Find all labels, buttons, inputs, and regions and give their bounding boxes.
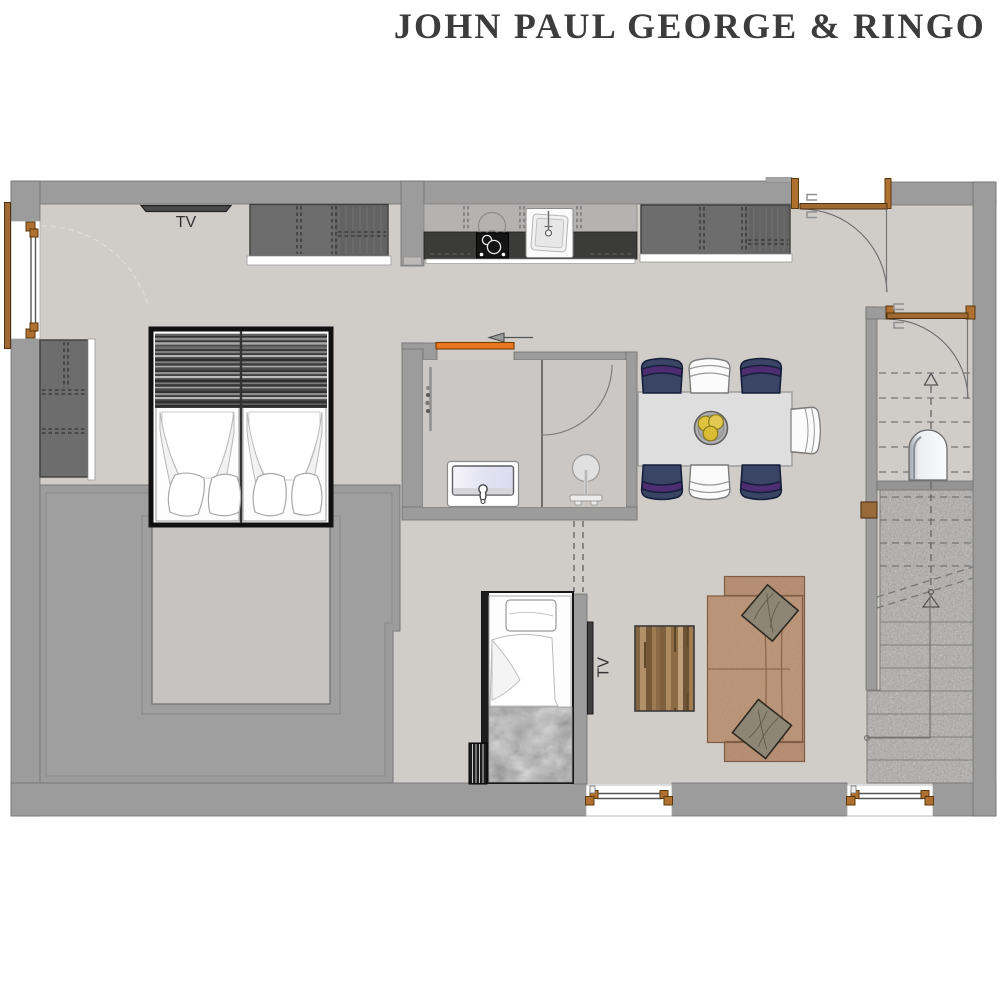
svg-text:TV: TV — [596, 657, 613, 678]
svg-text:TV: TV — [176, 214, 197, 231]
svg-text:JOHN PAUL GEORGE & RINGO: JOHN PAUL GEORGE & RINGO — [394, 6, 986, 46]
